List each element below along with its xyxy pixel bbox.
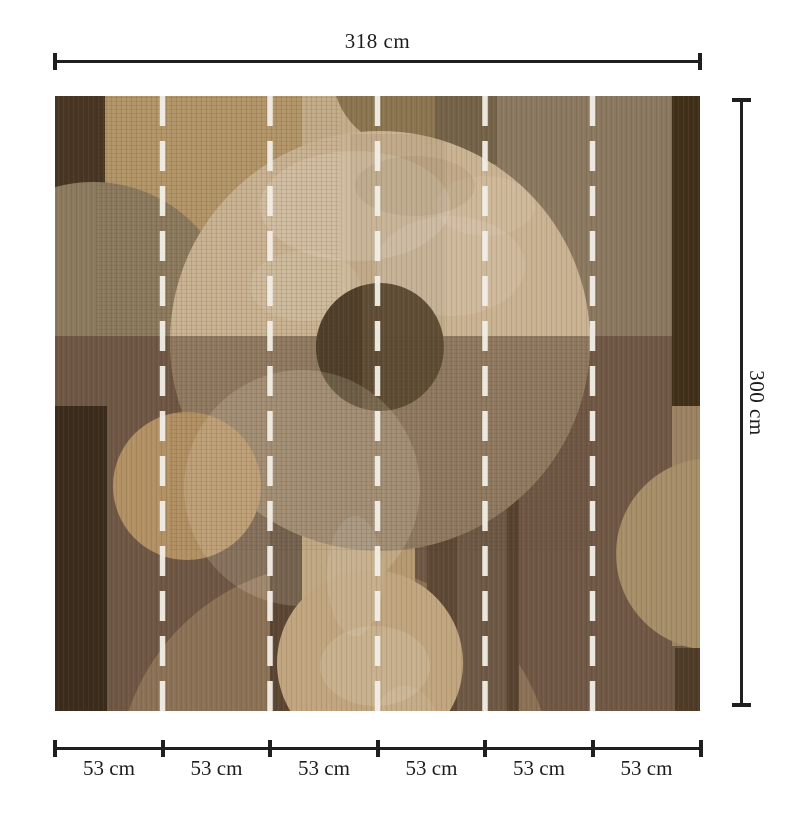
panel-tick [53,740,57,757]
panel-tick [699,740,703,757]
width-dimension-right-cap [698,53,702,70]
total-height-label: 300 cm [746,343,768,463]
panel-width-label: 53 cm [593,756,701,781]
diagram-canvas: 318 cm 300 cm [0,0,800,831]
panel-width-label: 53 cm [378,756,486,781]
panel-tick [483,740,487,757]
height-dimension-top-cap [732,98,751,102]
panel-width-label: 53 cm [270,756,378,781]
panel-tick [591,740,595,757]
total-width-label: 318 cm [55,29,700,54]
panel-width-label: 53 cm [55,756,163,781]
width-dimension-line [55,60,700,63]
height-dimension-bottom-cap [732,703,751,707]
panel-tick [268,740,272,757]
horizontal-grain-texture [95,96,340,336]
panel-tick [376,740,380,757]
panel-tick [161,740,165,757]
panel-width-label: 53 cm [163,756,271,781]
width-dimension-left-cap [53,53,57,70]
wallpaper-mural-preview [55,96,700,711]
height-dimension-line [740,100,743,707]
panel-width-label: 53 cm [485,756,593,781]
